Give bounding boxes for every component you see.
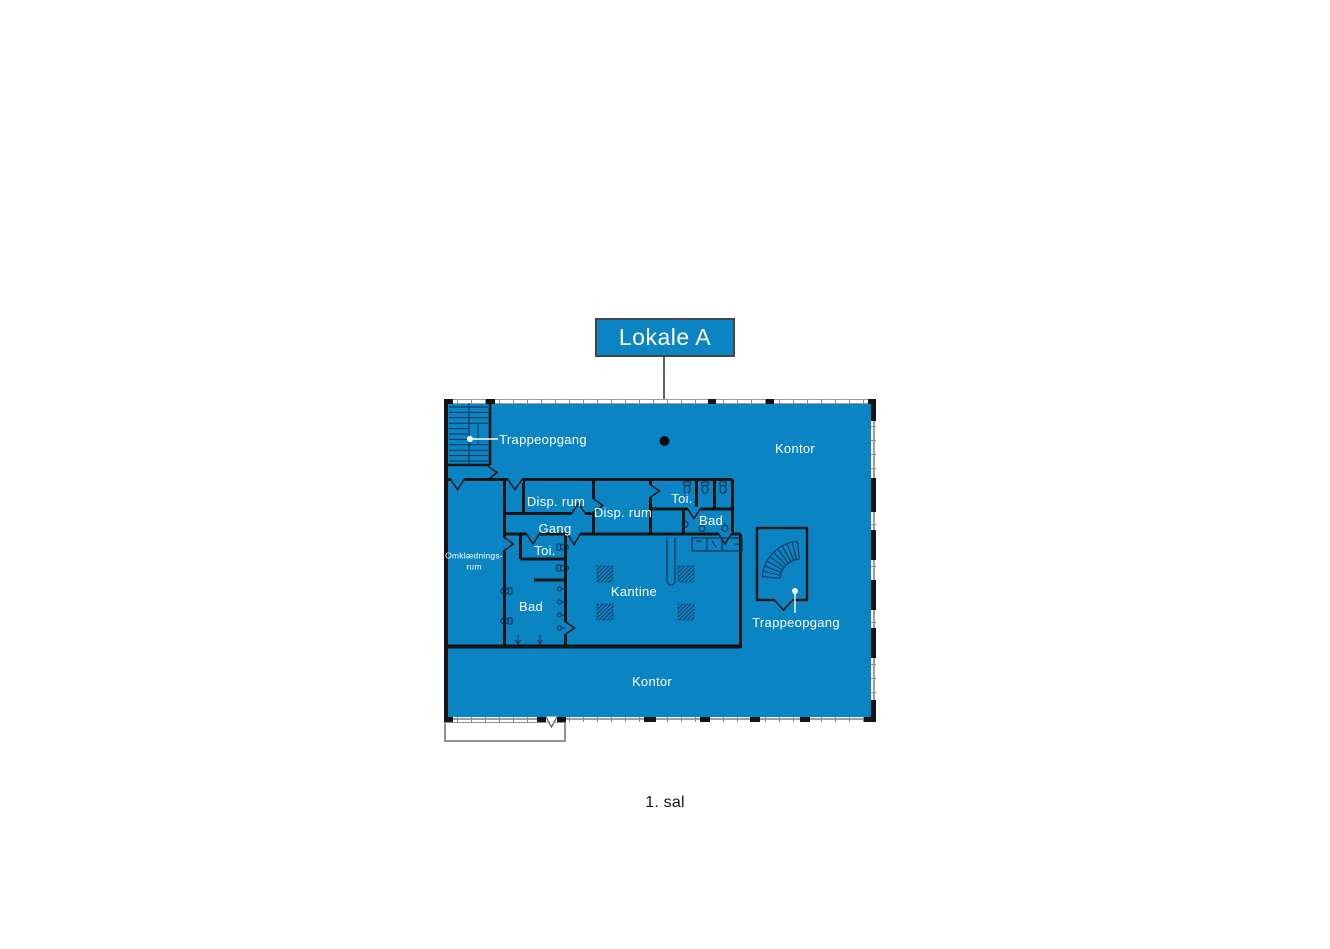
lokale-a-callout[interactable]: Lokale A [595, 318, 735, 357]
room-label-kantine: Kantine [611, 584, 657, 600]
room-label-kontor-top: Kontor [775, 441, 815, 457]
room-label-bad-upper-right: Bad [699, 513, 723, 529]
window-band-top [444, 399, 876, 404]
window-band-bottom [444, 717, 876, 722]
omklaedningsrum-line2: rum [445, 561, 503, 572]
room-label-gang: Gang [538, 521, 571, 537]
room-label-disp-rum-left: Disp. rum [527, 494, 585, 510]
room-label-trappeopgang-right: Trappeopgang [752, 615, 840, 631]
room-label-bad-left: Bad [519, 599, 543, 615]
lokale-a-anchor-dot [660, 436, 670, 446]
floor-plan: Trappeopgang Kontor Disp. rum Disp. rum … [444, 399, 876, 722]
room-label-kontor-bottom: Kontor [632, 674, 672, 690]
floor-caption: 1. sal [535, 794, 795, 812]
room-label-omklaedningsrum: Omklædnings- rum [445, 550, 503, 571]
floorplan-page: Lokale A [0, 0, 1330, 949]
balcony-door-swing [546, 717, 557, 728]
window-band-right [871, 399, 876, 722]
room-label-toi-left: Toi. [534, 543, 555, 559]
room-label-trappeopgang-top: Trappeopgang [499, 432, 587, 448]
room-label-toi-upper-right: Toi. [671, 491, 692, 507]
lokale-a-label: Lokale A [619, 324, 711, 351]
omklaedningsrum-line1: Omklædnings- [445, 550, 503, 561]
room-label-disp-rum-right: Disp. rum [594, 505, 652, 521]
